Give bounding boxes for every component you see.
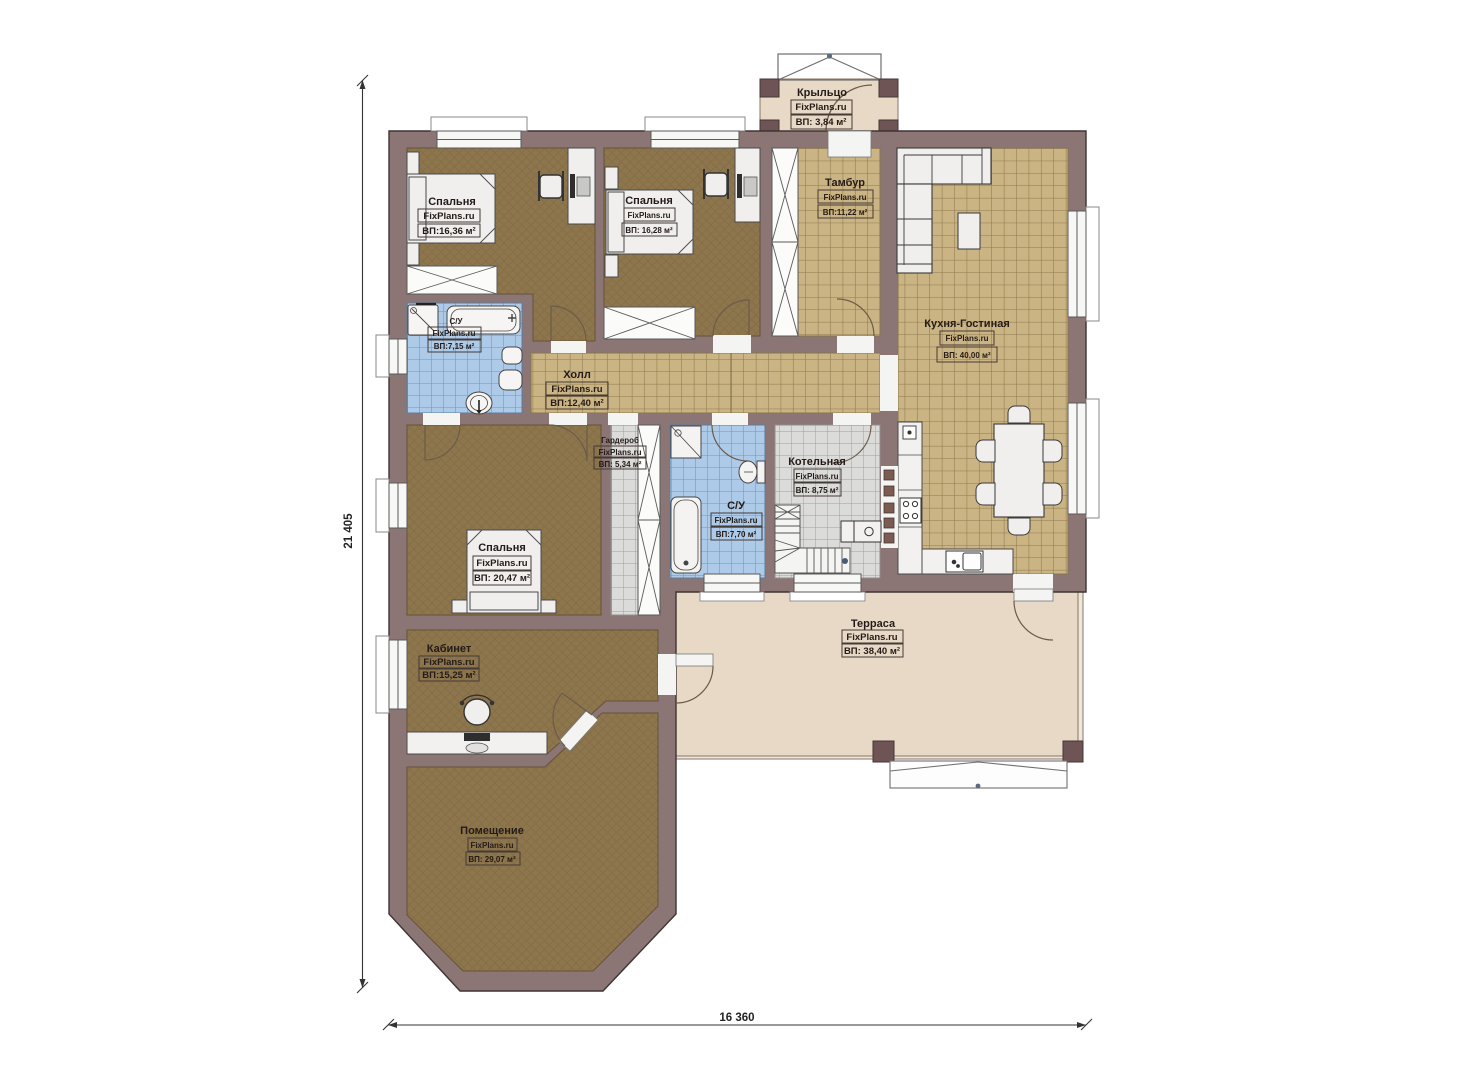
svg-text:ВП: 3,84 м²: ВП: 3,84 м² [796, 117, 847, 128]
svg-text:FixPlans.ru: FixPlans.ru [714, 516, 757, 525]
svg-text:FixPlans.ru: FixPlans.ru [945, 334, 988, 343]
svg-text:FixPlans.ru: FixPlans.ru [795, 102, 846, 113]
svg-text:Тамбур: Тамбур [825, 177, 865, 189]
svg-text:FixPlans.ru: FixPlans.ru [823, 193, 866, 202]
svg-text:Спальня: Спальня [625, 195, 673, 207]
svg-text:FixPlans.ru: FixPlans.ru [551, 384, 602, 395]
svg-text:Помещение: Помещение [460, 825, 524, 837]
svg-text:Кабинет: Кабинет [427, 643, 472, 655]
svg-text:ВП: 40,00 м²: ВП: 40,00 м² [943, 351, 991, 360]
svg-text:FixPlans.ru: FixPlans.ru [423, 211, 474, 222]
svg-text:ВП:11,22 м²: ВП:11,22 м² [823, 208, 868, 217]
svg-text:FixPlans.ru: FixPlans.ru [846, 632, 897, 643]
svg-text:FixPlans.ru: FixPlans.ru [598, 448, 641, 457]
svg-text:С/У: С/У [450, 317, 464, 326]
svg-text:Котельная: Котельная [788, 456, 846, 468]
svg-text:FixPlans.ru: FixPlans.ru [470, 841, 513, 850]
svg-text:С/У: С/У [727, 500, 745, 512]
svg-text:Кухня-Гостиная: Кухня-Гостиная [924, 318, 1010, 330]
svg-text:ВП:12,40 м²: ВП:12,40 м² [550, 398, 603, 409]
svg-text:ВП: 16,28 м²: ВП: 16,28 м² [625, 226, 673, 235]
svg-text:ВП: 38,40 м²: ВП: 38,40 м² [844, 646, 900, 657]
svg-text:ВП: 29,07 м²: ВП: 29,07 м² [468, 855, 516, 864]
svg-text:ВП: 5,34 м²: ВП: 5,34 м² [599, 460, 642, 469]
svg-text:FixPlans.ru: FixPlans.ru [795, 472, 838, 481]
svg-text:FixPlans.ru: FixPlans.ru [476, 558, 527, 569]
svg-text:ВП:15,25 м²: ВП:15,25 м² [422, 670, 475, 681]
svg-text:Крыльцо: Крыльцо [797, 87, 847, 99]
svg-text:ВП:16,36 м²: ВП:16,36 м² [422, 226, 475, 237]
svg-text:ВП: 8,75 м²: ВП: 8,75 м² [796, 486, 839, 495]
svg-text:FixPlans.ru: FixPlans.ru [432, 329, 475, 338]
svg-text:FixPlans.ru: FixPlans.ru [423, 657, 474, 668]
svg-text:Холл: Холл [563, 369, 591, 381]
svg-text:Гардероб: Гардероб [601, 436, 639, 445]
svg-text:Терраса: Терраса [851, 618, 896, 630]
svg-text:16 360: 16 360 [719, 1012, 754, 1024]
svg-text:Спальня: Спальня [428, 196, 476, 208]
svg-text:ВП: 20,47 м²: ВП: 20,47 м² [474, 573, 530, 584]
svg-text:ВП:7,70 м²: ВП:7,70 м² [716, 530, 757, 539]
svg-text:Спальня: Спальня [478, 542, 526, 554]
svg-text:ВП:7,15 м²: ВП:7,15 м² [434, 342, 475, 351]
svg-text:FixPlans.ru: FixPlans.ru [627, 211, 670, 220]
svg-text:21 405: 21 405 [343, 513, 355, 549]
